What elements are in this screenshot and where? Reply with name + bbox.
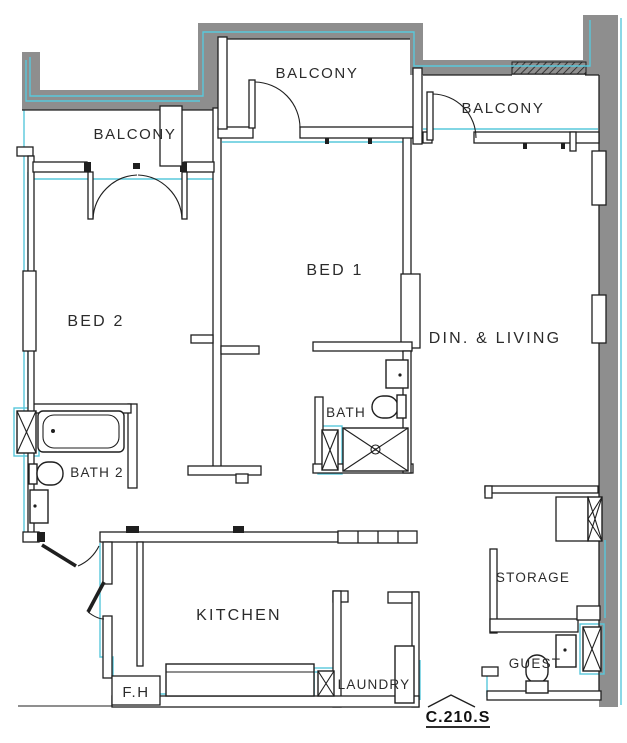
label-bed2: BED 2	[67, 313, 124, 330]
label-laundry: LAUNDRY	[338, 677, 411, 692]
shower	[343, 428, 408, 471]
balcony-railing-hatch	[512, 62, 586, 74]
entry-door	[42, 545, 99, 566]
label-bath: BATH	[326, 405, 366, 420]
entry-door	[88, 582, 104, 619]
shaft-x	[588, 497, 602, 541]
basin-bath2	[30, 490, 48, 523]
toilet-bath2	[29, 462, 63, 485]
label-storage: STORAGE	[496, 570, 570, 585]
floor-plan: BALCONY BALCONY BALCONY BED 2 BED 1 DIN.…	[0, 0, 627, 743]
unit-code: C.210.S	[426, 709, 491, 726]
toilet-bath	[372, 395, 406, 418]
label-kitchen: KITCHEN	[196, 607, 282, 624]
shaft-x	[583, 627, 601, 671]
label-bed1: BED 1	[306, 262, 363, 279]
window	[592, 295, 606, 343]
label-fire-hose: F.H	[122, 684, 149, 701]
shaft-x	[318, 671, 334, 696]
entry-arrow-icon	[428, 695, 475, 707]
shaft-x	[17, 411, 36, 453]
label-guest: GUEST	[509, 656, 562, 671]
label-bath2: BATH 2	[70, 465, 123, 480]
label-balcony-mid: BALCONY	[276, 65, 359, 82]
washer	[395, 646, 414, 703]
finish-lines	[14, 18, 621, 705]
bathtub	[38, 411, 124, 452]
window	[592, 151, 606, 205]
label-balcony-right: BALCONY	[462, 100, 545, 117]
window	[23, 271, 36, 351]
exterior-walls	[22, 15, 618, 707]
shaft-x	[322, 430, 338, 470]
label-balcony-left: BALCONY	[94, 126, 177, 143]
balcony-door	[249, 80, 300, 128]
unit-code-marker: C.210.S	[426, 695, 491, 727]
label-dining-living: DIN. & LIVING	[429, 330, 562, 347]
floor-plan-drawing: BALCONY BALCONY BALCONY BED 2 BED 1 DIN.…	[0, 0, 627, 743]
kitchen-counter	[166, 664, 314, 696]
basin-bath	[386, 360, 408, 388]
